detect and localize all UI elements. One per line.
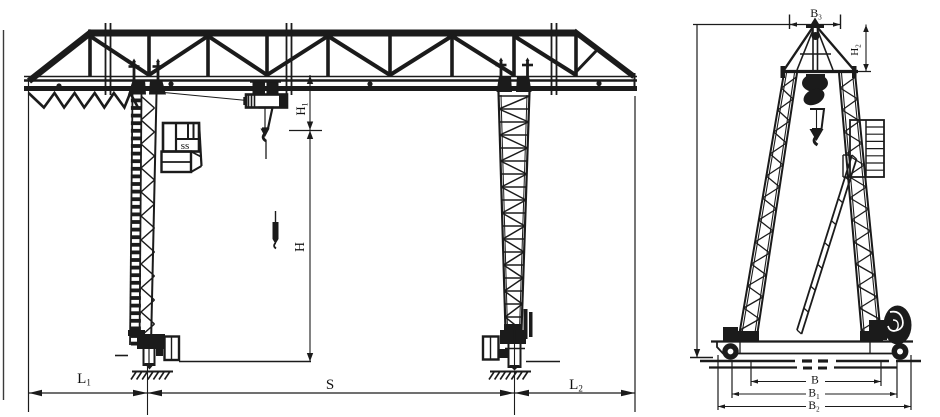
svg-text:ss: ss <box>181 140 190 152</box>
svg-text:H: H <box>292 242 307 252</box>
svg-text:S: S <box>326 377 334 393</box>
svg-text:B: B <box>811 375 819 387</box>
